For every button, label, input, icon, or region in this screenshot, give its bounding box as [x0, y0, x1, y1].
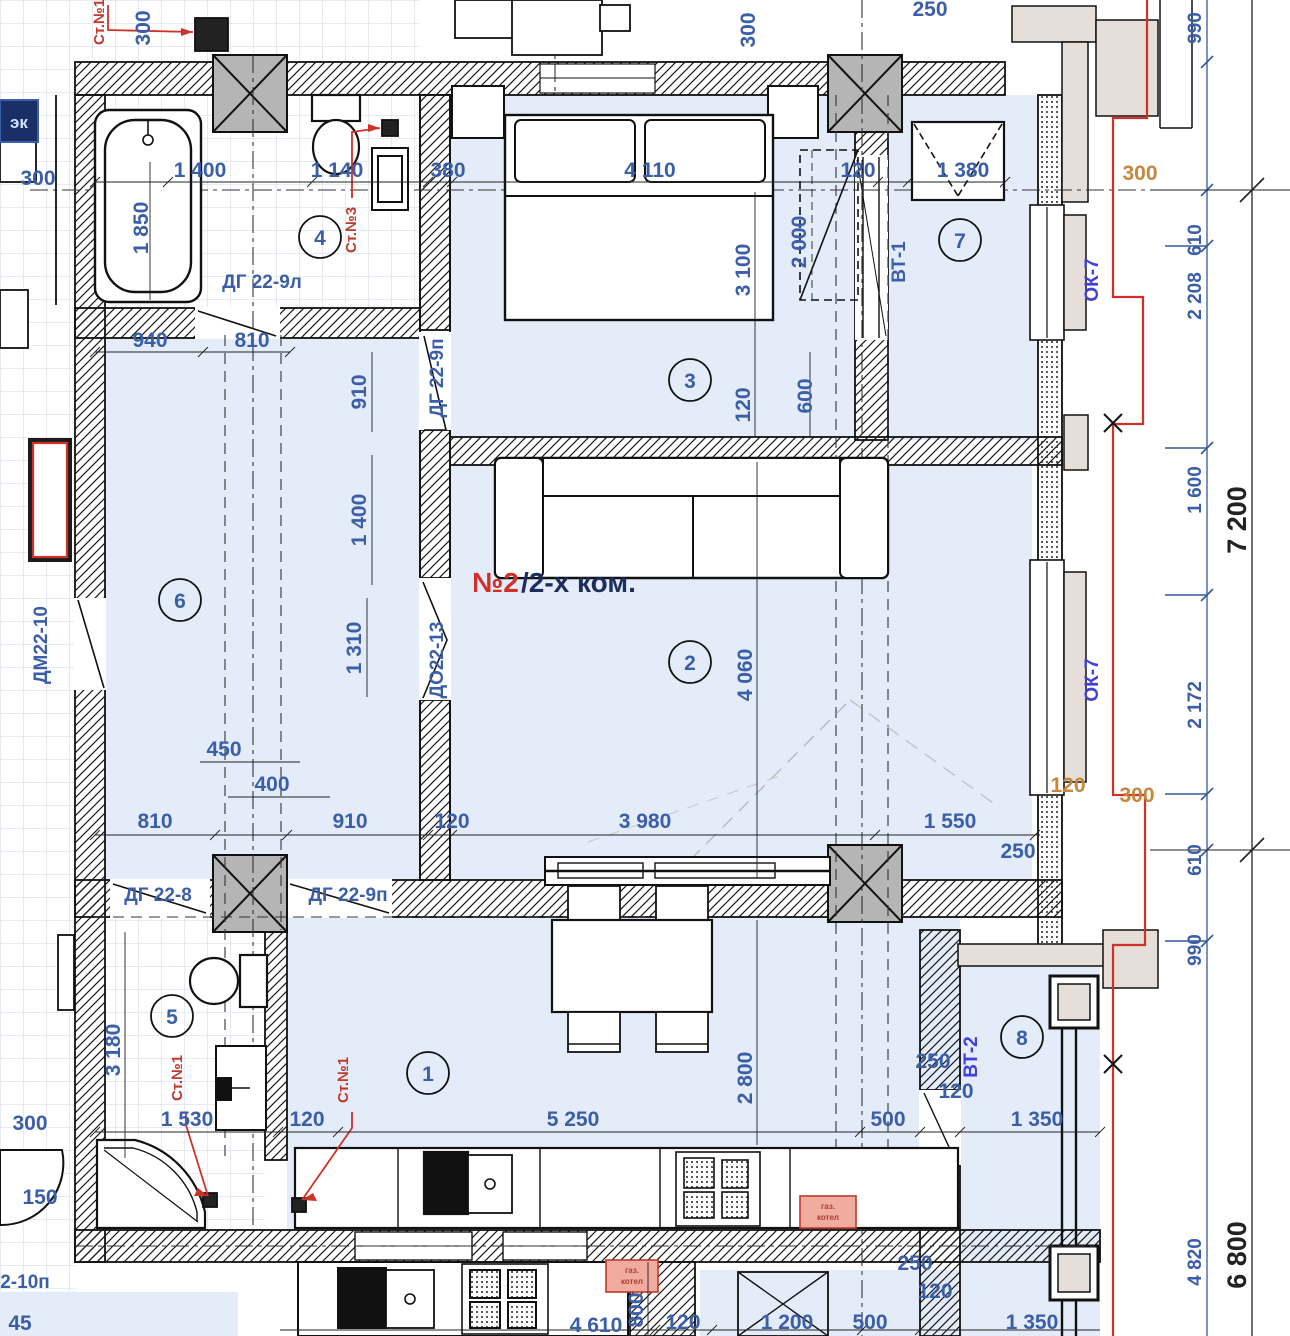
boiler-a-line1: газ.: [821, 1202, 835, 1211]
dim-380: 380: [430, 159, 465, 182]
dim-910-v: 910: [348, 374, 371, 409]
room-number-8: 8: [1016, 1027, 1028, 1050]
washbasin-bath: [372, 148, 408, 210]
riser-st1-wc-a: Ст.№1: [169, 1055, 186, 1101]
kitchen-stove: [676, 1152, 760, 1226]
dim-1530: 1 530: [161, 1108, 214, 1131]
room-number-3: 3: [684, 370, 696, 393]
chain-4820: 4 820: [1185, 1238, 1206, 1286]
dim-120-door: 120: [732, 387, 755, 422]
dim-2800: 2 800: [734, 1052, 757, 1105]
kitchen-counter: [295, 1148, 958, 1228]
dim-1380: 1 380: [937, 159, 990, 182]
chain-990-top: 990: [1185, 12, 1206, 44]
dim-3100: 3 100: [732, 244, 755, 297]
dim-120-orange: 120: [1050, 774, 1085, 797]
dim-500-bot: 500: [852, 1311, 887, 1334]
dim-5250: 5 250: [547, 1108, 600, 1131]
dim-940: 940: [132, 329, 167, 352]
chain-7200-overall: 7 200: [1222, 486, 1252, 554]
kitchen-sink: [424, 1152, 512, 1214]
floor-plan-drawing: №2 /2-х ком. 1 2 3 4 5 6 7 8 300 300 1 4…: [0, 0, 1290, 1336]
column-bottom-right: [828, 845, 902, 922]
gas-boiler-box-b: [606, 1260, 658, 1292]
mark-ok7-b: ОК-7: [1082, 658, 1103, 701]
room-number-6: 6: [174, 590, 186, 613]
wall-wc-right: [265, 930, 287, 1160]
dim-4110: 4 110: [624, 159, 675, 182]
dim-120-row: 120: [434, 810, 469, 833]
dim-250-b8: 250: [915, 1050, 950, 1073]
dim-1350-bot: 1 350: [1006, 1311, 1059, 1334]
room-number-1: 1: [422, 1063, 434, 1086]
dim-300-right-a: 300: [1122, 162, 1157, 185]
mark-dm22-10: ДМ22-10: [31, 606, 52, 684]
dim-120-bot: 120: [665, 1311, 700, 1334]
radiator: [28, 438, 72, 562]
dim-1350-b8: 1 350: [1011, 1108, 1064, 1131]
dim-1550: 1 550: [924, 810, 977, 833]
dim-300-top-left-v: 300: [132, 10, 155, 45]
boiler-a-line2: котел: [817, 1213, 839, 1222]
dim-120-wc: 120: [289, 1108, 324, 1131]
chain-6800-overall: 6 800: [1222, 1221, 1252, 1289]
mark-dg22-9l: ДГ 22-9л: [222, 272, 302, 293]
dim-4610: 4 610: [570, 1314, 623, 1336]
dim-910-row: 910: [332, 810, 367, 833]
dim-150-bl: 150: [22, 1186, 57, 1209]
dim-45-bl: 45: [8, 1312, 32, 1335]
dim-800: 800: [625, 1292, 648, 1327]
apartment-title-number: №2: [472, 567, 519, 598]
label-vt1: ВТ-1: [889, 241, 910, 283]
mark-dm22-10p: 2-10п: [0, 1272, 50, 1293]
dim-400: 400: [254, 773, 289, 796]
mark-dg22-8: ДГ 22-8: [124, 885, 192, 906]
dim-120-bot-b: 120: [917, 1280, 952, 1303]
room-number-4: 4: [314, 227, 326, 250]
tv-console: [545, 857, 830, 885]
dim-300-left: 300: [20, 167, 55, 190]
column-bottom-left: [213, 855, 287, 932]
chain-610-bot: 610: [1185, 844, 1206, 876]
mark-dg22-9p-v: ДГ 22-9п: [427, 338, 448, 417]
dim-810-row: 810: [137, 810, 172, 833]
boiler-b-line1: газ.: [625, 1266, 639, 1275]
dim-250-row: 250: [1000, 840, 1035, 863]
dim-600-door: 600: [794, 378, 817, 413]
dim-1200: 1 200: [761, 1311, 814, 1334]
dim-3980: 3 980: [619, 810, 672, 833]
riser-st1-top: Ст.№1: [91, 0, 108, 45]
dim-3180: 3 180: [102, 1024, 125, 1077]
dim-810-top: 810: [234, 329, 269, 352]
bed: [452, 86, 818, 320]
sofa: [495, 458, 888, 578]
dim-1850: 1 850: [130, 202, 153, 255]
riser-st1-wc-b: Ст.№1: [335, 1057, 352, 1103]
dim-1400-v: 1 400: [348, 494, 371, 547]
dim-120-bed: 120: [840, 159, 875, 182]
dim-1400: 1 400: [174, 159, 227, 182]
chain-990-bot: 990: [1185, 934, 1206, 966]
shaft-column-b: [1050, 1246, 1098, 1300]
chain-2208: 2 208: [1185, 272, 1206, 320]
room-number-2: 2: [684, 652, 696, 675]
mark-ok7-a: ОК-7: [1082, 258, 1103, 301]
floor-plan-page: №2 /2-х ком. 1 2 3 4 5 6 7 8 300 300 1 4…: [0, 0, 1290, 1336]
dim-250-bot: 250: [897, 1252, 932, 1275]
chain-610-top: 610: [1185, 224, 1206, 256]
dim-250-top: 250: [912, 0, 947, 21]
chain-2172: 2 172: [1185, 681, 1206, 729]
toilet-wc: [190, 955, 267, 1007]
column-top-right: [828, 55, 902, 132]
dim-500-b8: 500: [870, 1108, 905, 1131]
label-vt2: ВТ-2: [961, 1036, 982, 1078]
boiler-b-line2: котел: [621, 1277, 643, 1286]
dim-120-b8: 120: [938, 1080, 973, 1103]
dim-300-bl: 300: [12, 1112, 47, 1135]
column-top-left: [213, 55, 287, 132]
dim-4060: 4 060: [734, 649, 757, 702]
washbasin-wc: [216, 1046, 266, 1130]
ek-label: эк: [10, 113, 28, 132]
room-number-7: 7: [954, 230, 966, 253]
riser-st3-bath: Ст.№3: [343, 207, 360, 253]
mark-do22-13: ДО22-13: [427, 622, 448, 699]
dim-2000: 2 000: [788, 216, 811, 269]
chain-1600: 1 600: [1185, 466, 1206, 514]
dim-1140: 1 140: [311, 159, 364, 182]
dim-300-top-mid-v: 300: [737, 12, 760, 47]
mark-dg22-9p-h: ДГ 22-9п: [308, 885, 387, 906]
apartment-title-suffix: /2-х ком.: [521, 567, 636, 598]
gas-boiler-box-a: [800, 1196, 856, 1228]
room-number-5: 5: [166, 1006, 178, 1029]
shaft-column-a: [1050, 976, 1098, 1028]
dim-1310-v: 1 310: [343, 622, 366, 675]
dim-450: 450: [206, 738, 241, 761]
dim-300-right-b: 300: [1119, 784, 1154, 807]
